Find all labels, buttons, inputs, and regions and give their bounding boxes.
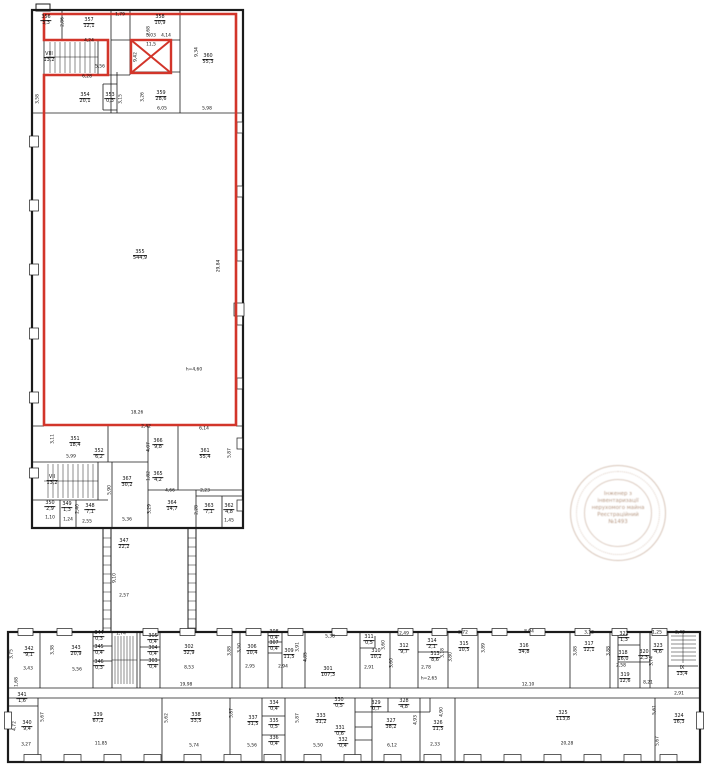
stairs-lower [112, 636, 137, 684]
stairs-vii [44, 464, 98, 498]
stamp-text: Інженер зінвентаризаціїнерухомого майнаР… [580, 491, 656, 526]
stairs-viii [46, 42, 98, 73]
upper-building-walls [32, 4, 243, 528]
red-highlight-outline [44, 14, 236, 425]
registration-seal-stamp: Інженер зінвентаризаціїнерухомого майнаР… [570, 465, 666, 561]
lower-building-walls [8, 632, 700, 762]
technical-floor-plan-page: 3563,335712,135810,93,0311,536055,3VIII1… [0, 0, 704, 766]
connecting-gallery-walls [103, 528, 196, 632]
stairs-ix [671, 632, 696, 663]
window-marks [5, 122, 704, 762]
floor-plan-drawing [0, 0, 704, 766]
